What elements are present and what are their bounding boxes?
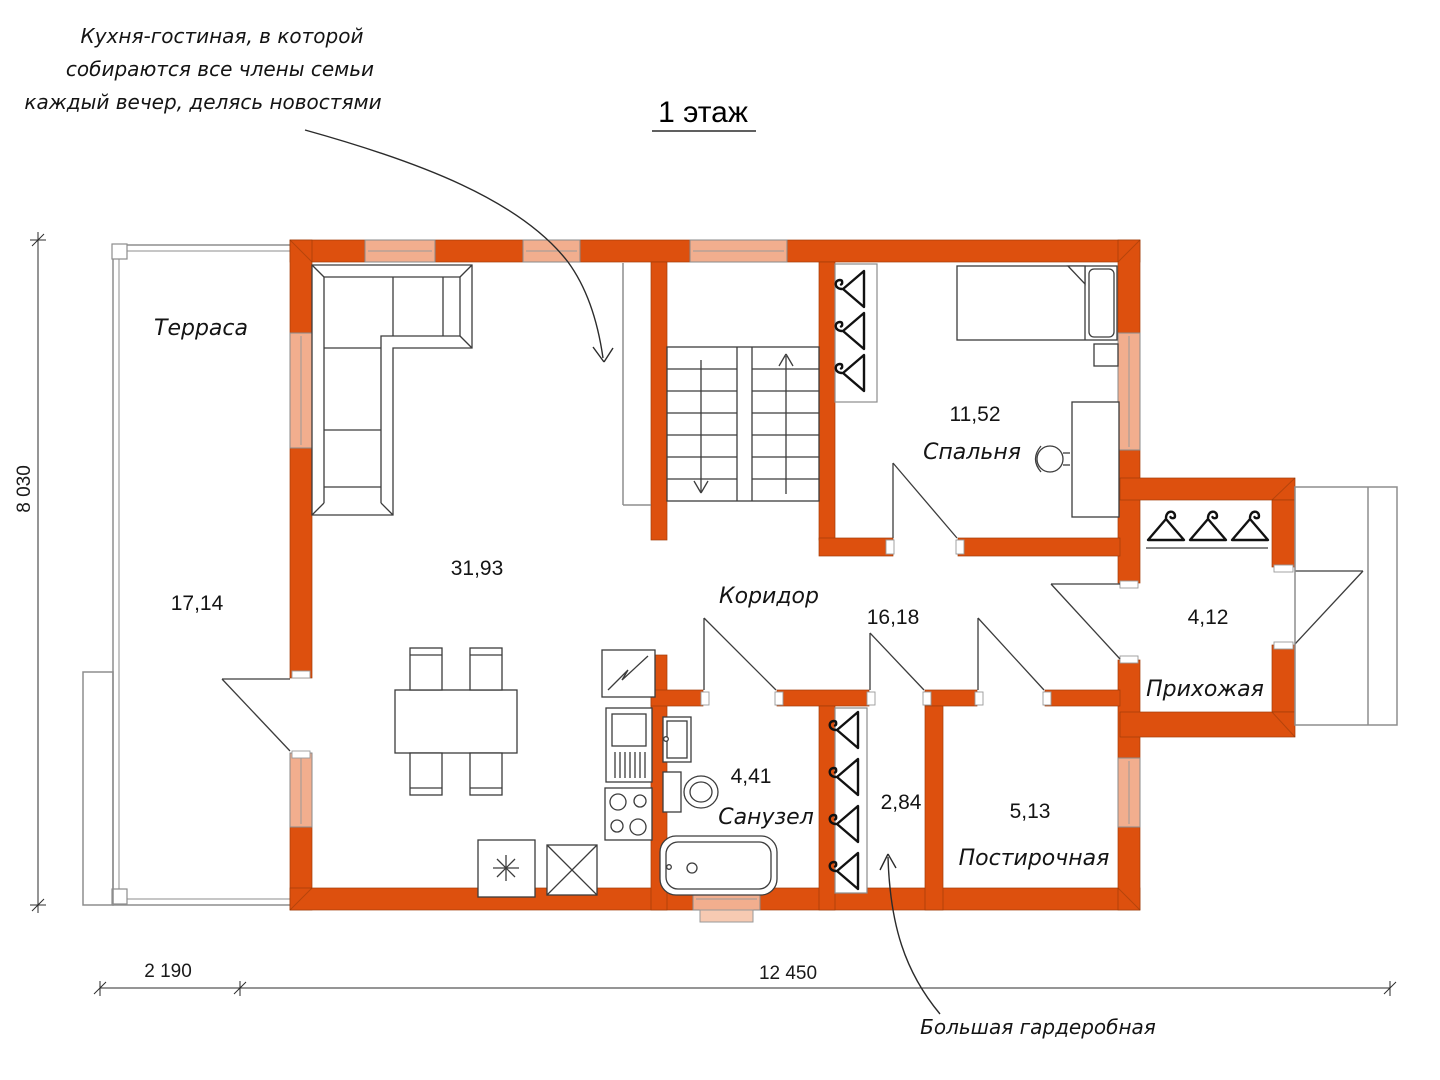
corner-sofa: [312, 265, 472, 515]
desk-chair: [1036, 446, 1071, 472]
window: [290, 333, 312, 448]
cooktop: [605, 788, 652, 840]
room-area-bathroom: 4,41: [731, 765, 772, 788]
door-laundry: [978, 618, 1044, 690]
terrace-post: [112, 889, 127, 904]
title-text: 1 этаж: [658, 96, 748, 129]
room-area-laundry: 5,13: [1010, 800, 1051, 823]
dining-set: [395, 648, 517, 795]
room-label-laundry: Постирочная: [959, 846, 1110, 871]
sink-cabinet: [547, 845, 597, 895]
bathtub: [660, 836, 777, 895]
dimension-house-label: 12 450: [759, 963, 817, 984]
desk: [1072, 402, 1119, 517]
terrace-steps: [83, 672, 113, 905]
dining-chair: [410, 648, 442, 690]
bed: [957, 266, 1117, 340]
floor-plan-drawing: 8 030 2 190 12 450 1 этаж Кухня-гостиная…: [0, 0, 1440, 1080]
window: [290, 753, 312, 827]
dimension-height-label: 8 030: [14, 465, 35, 513]
door-terrace: [222, 679, 290, 751]
hallway-closet: [1146, 512, 1268, 548]
stair-arrow-up: [779, 354, 793, 494]
note-line: собираются все члены семьи: [66, 57, 374, 81]
washing-machine: [478, 840, 535, 897]
dimension-left: 8 030: [14, 232, 46, 913]
room-area-hallway: 4,12: [1188, 606, 1229, 629]
window: [690, 240, 787, 262]
floor-plan-page: 8 030 2 190 12 450 1 этаж Кухня-гостиная…: [0, 0, 1440, 1080]
stair-arrow-down: [694, 360, 708, 493]
stair-steps: [667, 369, 819, 479]
room-area-corridor: 16,18: [867, 606, 920, 629]
entry-porch: [1295, 487, 1397, 725]
door-bathroom: [704, 618, 776, 690]
window: [1118, 333, 1140, 450]
wardrobe-note: Большая гардеробная: [920, 1015, 1156, 1039]
window: [365, 240, 435, 262]
wardrobe-closet: [830, 708, 867, 893]
dining-table: [395, 690, 517, 753]
door-bedroom: [893, 463, 957, 538]
page-title: 1 этаж: [652, 96, 756, 131]
note-line: каждый вечер, делясь новостями: [24, 90, 381, 114]
bedroom-furniture: [835, 264, 1119, 517]
dining-chair: [410, 753, 442, 795]
window: [1118, 758, 1140, 827]
note-line: Кухня-гостиная, в которой: [81, 24, 364, 48]
dining-chair: [470, 648, 502, 690]
toilet: [663, 772, 718, 812]
oven: [606, 708, 652, 782]
dining-chair: [470, 753, 502, 795]
washbasin: [663, 717, 691, 762]
door-entry: [1295, 571, 1363, 644]
door-hallway: [1051, 584, 1120, 659]
room-label-bathroom: Санузел: [718, 805, 814, 830]
dimension-bottom: 2 190 12 450: [94, 961, 1396, 996]
room-area-terrace: 17,14: [171, 592, 224, 615]
terrace-post: [112, 244, 127, 259]
nightstand: [1094, 344, 1118, 366]
room-label-bedroom: Спальня: [923, 440, 1021, 465]
room-area-kitchen-living: 31,93: [451, 557, 504, 580]
kitchen-appliances: [478, 650, 655, 897]
bedroom-closet: [835, 264, 877, 402]
fridge: [602, 650, 655, 697]
room-label-hallway: Прихожая: [1146, 677, 1264, 702]
dimension-terrace-label: 2 190: [144, 961, 192, 982]
terrace-outline: [83, 244, 290, 905]
room-area-wardrobe: 2,84: [881, 791, 922, 814]
room-label-terrace: Терраса: [154, 316, 248, 341]
room-area-bedroom: 11,52: [950, 403, 1001, 426]
kitchen-note: Кухня-гостиная, в которой собираются все…: [24, 24, 381, 114]
stair-balustrade: [623, 263, 651, 505]
room-label-corridor: Коридор: [719, 584, 819, 609]
door-wardrobe: [870, 633, 924, 690]
